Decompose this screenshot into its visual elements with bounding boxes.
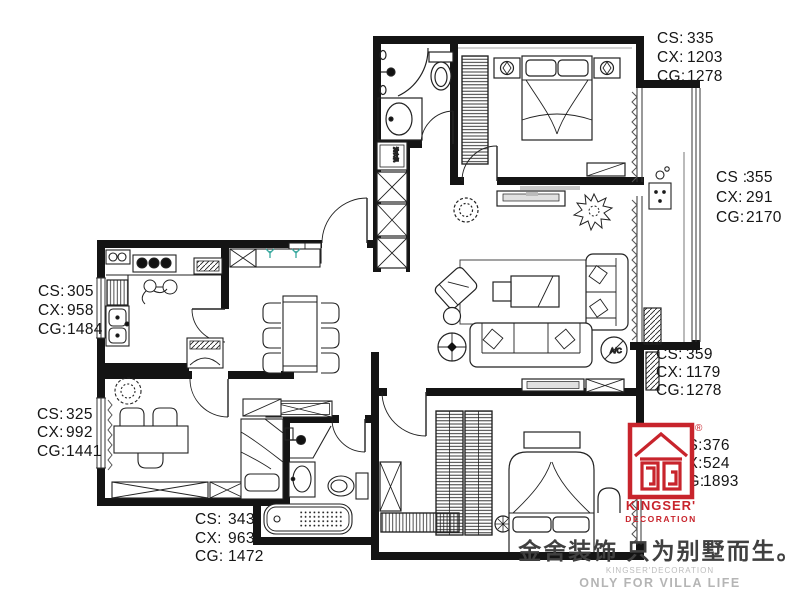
dim-key: CG: [195, 548, 223, 565]
dim-val: 343 [228, 511, 255, 528]
dim-val: 355 [746, 169, 773, 186]
dim-key: CS: [38, 283, 65, 300]
dim-val: 958 [67, 302, 94, 319]
stove-icon [133, 255, 176, 272]
single-bed-icon [241, 419, 283, 499]
storage-cabinets [377, 172, 407, 268]
dim-key: CX: [716, 189, 743, 206]
floorplan-drawing: 洗衣机 [0, 0, 800, 596]
dim-val: 1278 [686, 382, 722, 399]
dim-val: 1203 [687, 49, 723, 66]
nightstand-right [594, 58, 620, 78]
dim-key: CS: [195, 511, 222, 528]
double-bed-icon [522, 56, 592, 140]
slogan-en-2: ONLY FOR VILLA LIFE [579, 576, 740, 590]
radiator-icon [381, 513, 459, 532]
dim-val: 963 [228, 530, 255, 547]
washing-machine-icon: 洗衣机 [377, 142, 407, 170]
dim-val: 376 [703, 437, 730, 454]
dim-val: 1179 [686, 364, 721, 381]
washer-label: 洗衣机 [392, 147, 399, 162]
dimension-label-bottom: CS: 343 CX: 963 CG: 1472 [195, 511, 264, 565]
dim-key: CG: [38, 321, 66, 338]
dim-val: 1278 [687, 68, 723, 85]
dim-val: 524 [703, 455, 730, 472]
cabinet2 [586, 379, 624, 392]
dim-key: CS: [656, 346, 683, 363]
dim-key: CX: [38, 302, 65, 319]
dimension-label-right-lower: CS: 359 CX: 1179 CG: 1278 [656, 346, 722, 399]
dim-key: CG: [657, 68, 685, 85]
ac-indoor-symbol: A/C [601, 337, 627, 363]
dim-key: CS : [716, 169, 747, 186]
slogan-cn: 金舍装饰 只为别墅而生。 [517, 538, 800, 564]
sofa-two-seat-icon [586, 254, 628, 330]
dim-val: 325 [66, 406, 93, 423]
desk-icon [114, 426, 188, 453]
dim-val: 335 [687, 30, 714, 47]
logo-text-2: DECORATION [625, 514, 697, 524]
media-shelf [520, 186, 580, 190]
dim-val: 1484 [67, 321, 103, 338]
dish-rack-icon [107, 280, 128, 305]
dim-val: 291 [746, 189, 773, 206]
dim-key: CX: [195, 530, 222, 547]
dim-key: CS: [37, 406, 64, 423]
dim-val: 1472 [228, 548, 264, 565]
dimension-label-left-upper: CS: 305 CX: 958 CG: 1484 [38, 283, 103, 338]
desk-return [243, 399, 281, 416]
dimension-label-top-right: CS: 335 CX: 1203 CG: 1278 [657, 30, 723, 85]
slogan-en-1: KINGSER'DECORATION [606, 566, 714, 575]
toilet-icon [429, 52, 453, 90]
dimension-label-left-lower: CS: 325 CX: 992 CG: 1441 [37, 406, 102, 460]
nightstand-left [494, 58, 520, 78]
dim-key: CS: [657, 30, 684, 47]
dim-key: CG: [656, 382, 684, 399]
ac-label: A/C [610, 348, 622, 355]
dim-key: CG: [716, 209, 744, 226]
sink-icon [106, 306, 129, 346]
bathtub-icon [264, 504, 352, 534]
study-cabinets [112, 482, 244, 498]
dimension-label-right-upper: CS : 355 CX: 291 CG: 2170 [716, 169, 782, 226]
bedside-chair-icon [598, 488, 620, 513]
dresser-icon [587, 163, 625, 176]
dim-key: CX: [656, 364, 683, 381]
shower-head2-icon [297, 436, 306, 445]
dim-val: 1893 [703, 473, 739, 490]
dim-val: 992 [66, 424, 93, 441]
washbasin2-icon [289, 462, 315, 497]
kingser-logo: ® KINGSER' DECORATION [625, 423, 703, 524]
dim-val: 1441 [66, 443, 102, 460]
logo-text-1: KINGSER' [626, 498, 696, 513]
sofa-three-seat-icon [470, 323, 592, 367]
fridge-icon [187, 338, 223, 368]
dim-val: 359 [686, 346, 713, 363]
floor-lamp-icon [438, 333, 466, 361]
nightstand2 [380, 462, 401, 511]
tv-board2 [522, 379, 584, 391]
tv-cabinet-icon [497, 191, 565, 206]
wardrobe-icon [462, 56, 488, 164]
dim-key: CX: [657, 49, 684, 66]
side-table-icon [444, 308, 461, 325]
dining-table-icon [283, 296, 317, 372]
dim-val: 2170 [746, 209, 782, 226]
shower-head-icon [387, 68, 395, 76]
registered-mark: ® [695, 423, 703, 434]
floorplan-page: 洗衣机 [0, 0, 800, 596]
dim-val: 305 [67, 283, 94, 300]
small-appliance-icon [106, 250, 130, 264]
dim-key: CX: [37, 424, 64, 441]
dim-key: CG: [37, 443, 65, 460]
sideboard-top [230, 249, 320, 267]
microwave-icon [194, 258, 222, 274]
